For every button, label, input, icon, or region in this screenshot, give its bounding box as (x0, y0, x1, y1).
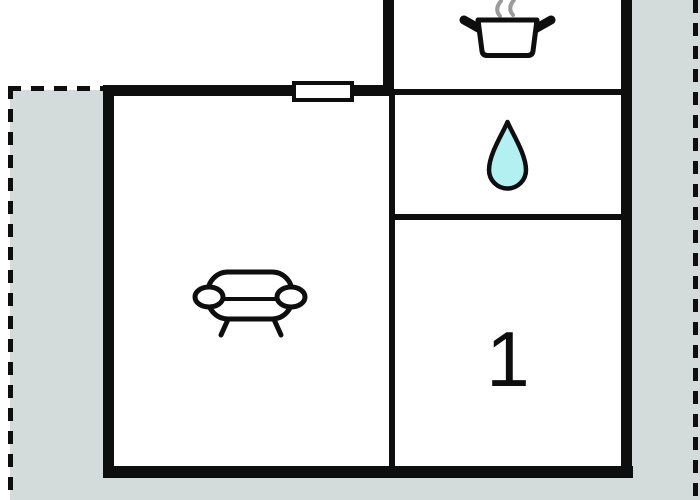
floor-plan: 1 (0, 0, 700, 500)
wall-outer-bottom (103, 466, 633, 478)
bedroom-number-label: 1 (478, 320, 538, 398)
terrace-dashed-border-right (693, 0, 698, 500)
water-drop-icon (484, 118, 531, 196)
wall-interior-vertical (389, 90, 395, 467)
cooking-pot-icon (455, 0, 560, 62)
wall-outer-right (621, 0, 632, 478)
terrace-dashed-border-top (8, 86, 105, 91)
wall-bathroom-bedroom-divider (394, 214, 621, 220)
wall-kitchen-left (383, 0, 394, 96)
window (292, 81, 354, 102)
terrace-area-left (10, 90, 103, 500)
wall-kitchen-bathroom-divider (394, 89, 621, 95)
sofa-icon (192, 265, 308, 339)
terrace-dashed-border-left (8, 86, 13, 500)
wall-outer-left (103, 85, 114, 478)
terrace-area-right (632, 0, 700, 500)
terrace-area-bottom (10, 478, 700, 500)
